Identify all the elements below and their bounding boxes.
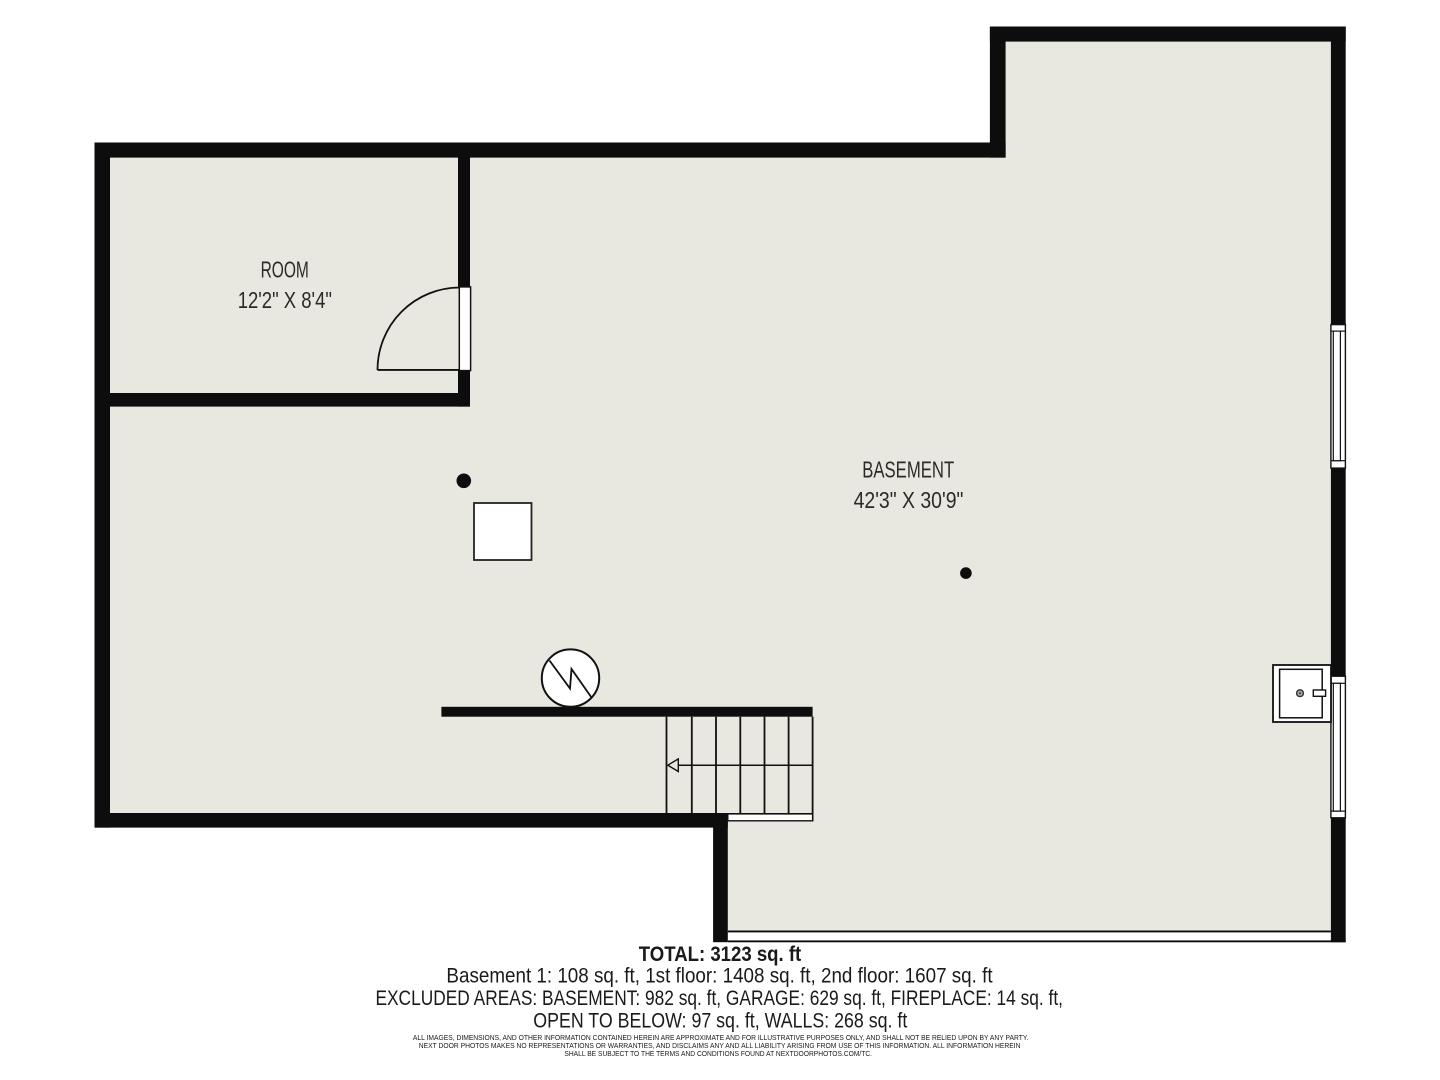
svg-text:BASEMENT: BASEMENT [862, 458, 954, 483]
svg-text:OPEN TO BELOW: 97 sq. ft, WALL: OPEN TO BELOW: 97 sq. ft, WALLS: 268 sq.… [533, 1009, 908, 1033]
svg-text:TOTAL: 3123 sq. ft: TOTAL: 3123 sq. ft [639, 943, 802, 966]
svg-text:SHALL BE SUBJECT TO THE TERMS: SHALL BE SUBJECT TO THE TERMS AND CONDIT… [564, 1049, 872, 1057]
svg-text:EXCLUDED AREAS: BASEMENT: 982: EXCLUDED AREAS: BASEMENT: 982 sq. ft, GA… [375, 988, 1063, 1011]
svg-text:ROOM: ROOM [261, 258, 309, 284]
svg-text:12'2" X 8'4": 12'2" X 8'4" [238, 288, 332, 313]
svg-text:42'3" X 30'9": 42'3" X 30'9" [854, 487, 964, 513]
svg-text:Basement 1: 108 sq. ft, 1st fl: Basement 1: 108 sq. ft, 1st floor: 1408 … [446, 965, 993, 988]
